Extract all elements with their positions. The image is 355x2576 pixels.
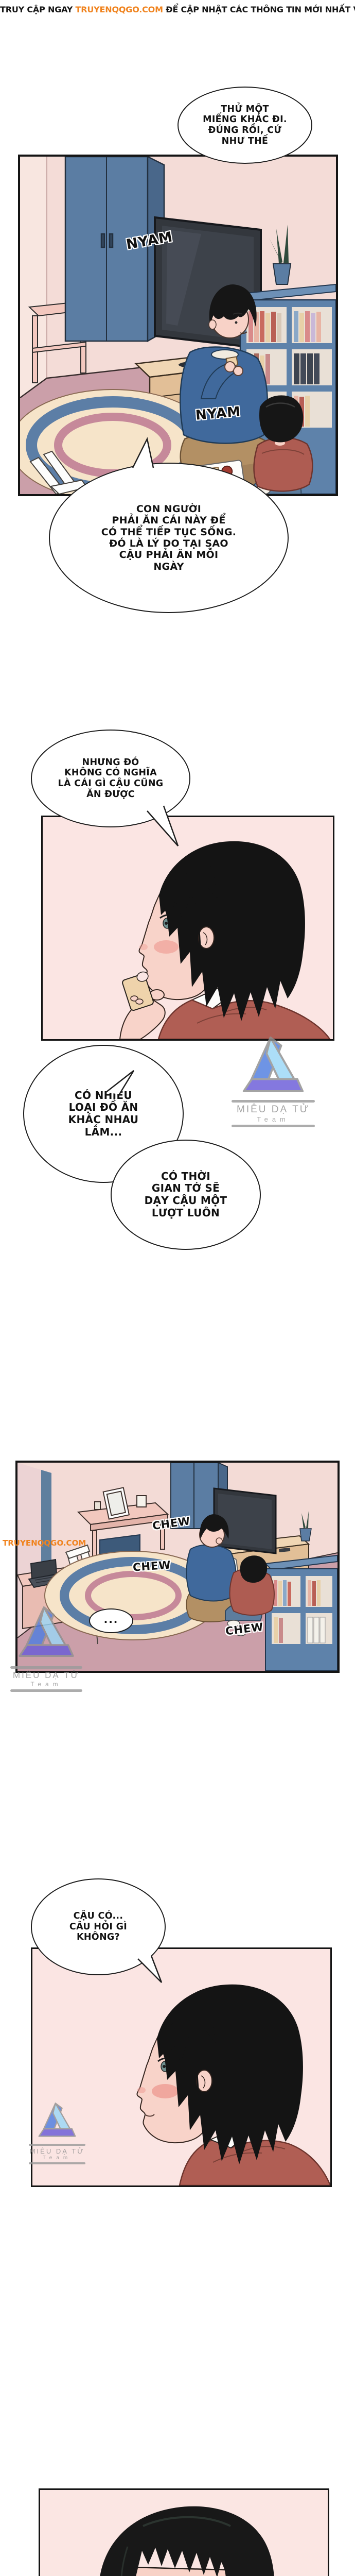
panel-2-art: [43, 817, 333, 1039]
watermark-bar: [232, 1100, 315, 1103]
panel-1-art: [20, 157, 336, 494]
speech-bubble-2-text: CON NGƯỜI PHẢI ĂN CÁI NÀY ĐỂ CÓ THỂ TIẾP…: [101, 503, 237, 572]
team-name: MIÊU DẠ TỬ: [232, 1104, 315, 1115]
ellipsis-bubble-panel3-text: ...: [104, 1614, 119, 1628]
watermark-bar: [10, 1666, 82, 1669]
comic-panel-2: [41, 816, 334, 1041]
speech-bubble-5: CÓ THỜI GIAN TỚ SẼ DẠY CẬU MỘT LƯỢT LUÔN: [111, 1140, 261, 1250]
team-name: MIÊU DẠ TỬ: [29, 2147, 85, 2155]
header-banner: TRUY CẬP NGAY TRUYENQQGO.COM ĐỂ CẬP NHẬT…: [0, 5, 355, 14]
watermark-bar: [232, 1125, 315, 1127]
speech-bubble-5-text: CÓ THỜI GIAN TỚ SẼ DẠY CẬU MỘT LƯỢT LUÔN: [145, 1171, 227, 1219]
team-watermark-1: MIÊU DẠ TỬ Team: [232, 1026, 315, 1129]
ellipsis-bubble-panel3: ...: [89, 1608, 133, 1633]
team-watermark-3: MIÊU DẠ TỬ Team: [29, 2095, 85, 2166]
speech-bubble-2: CON NGƯỜI PHẢI ĂN CÁI NÀY ĐỂ CÓ THỂ TIẾP…: [49, 463, 289, 613]
header-text-prefix: TRUY CẬP NGAY: [0, 5, 76, 14]
speech-bubble-4-text: CÓ NHIỀU LOẠI ĐỒ ĂN KHÁC NHAU LẮM...: [68, 1090, 139, 1138]
team-label: Team: [232, 1115, 315, 1123]
team-watermark-2: MIÊU DẠ TỬ Team: [10, 1595, 82, 1693]
speech-bubble-1: THỬ MỘT MIẾNG KHÁC ĐI. ĐÚNG RỒI, CỨ NHƯ …: [177, 87, 312, 164]
speech-bubble-2-tail: [129, 437, 159, 471]
watermark-bar: [29, 2144, 85, 2146]
speech-bubble-6-tail: [135, 1954, 166, 1986]
team-label: Team: [10, 1681, 82, 1688]
team-logo-icon: [37, 2095, 78, 2142]
speech-bubble-3-text: NHƯNG ĐÓ KHÔNG CÓ NGHĨA LÀ CÁI GÌ CẬU CŨ…: [58, 757, 164, 800]
watermark-bar: [29, 2162, 85, 2164]
team-label: Team: [29, 2155, 85, 2161]
panel-5-art: [40, 2490, 328, 2576]
comic-page: TRUY CẬP NGAY TRUYENQQGO.COM ĐỂ CẬP NHẬT…: [0, 0, 355, 2576]
team-logo-icon: [16, 1595, 77, 1665]
header-site-link: TRUYENQQGO.COM: [76, 5, 163, 14]
speech-bubble-6-text: CẬU CÓ... CÂU HỎI GÌ KHÔNG?: [69, 1911, 127, 1943]
header-text-suffix: ĐỂ CẬP NHẬT CÁC THÔNG TIN MỚI NHẤT VỀ TR…: [163, 5, 355, 14]
watermark-bar: [10, 1689, 82, 1692]
team-logo-icon: [240, 1026, 307, 1098]
comic-panel-5: [39, 2488, 329, 2576]
bookshelf: [265, 1555, 338, 1671]
team-name: MIÊU DẠ TỬ: [10, 1670, 82, 1681]
speech-bubble-1-text: THỬ MỘT MIẾNG KHÁC ĐI. ĐÚNG RỒI, CỨ NHƯ …: [203, 104, 287, 147]
comic-panel-1: [18, 155, 338, 496]
speech-bubble-4-tail: [102, 1067, 138, 1096]
site-watermark: TRUYENQQGO.COM: [3, 1538, 86, 1548]
speech-bubble-3-tail: [144, 804, 183, 850]
